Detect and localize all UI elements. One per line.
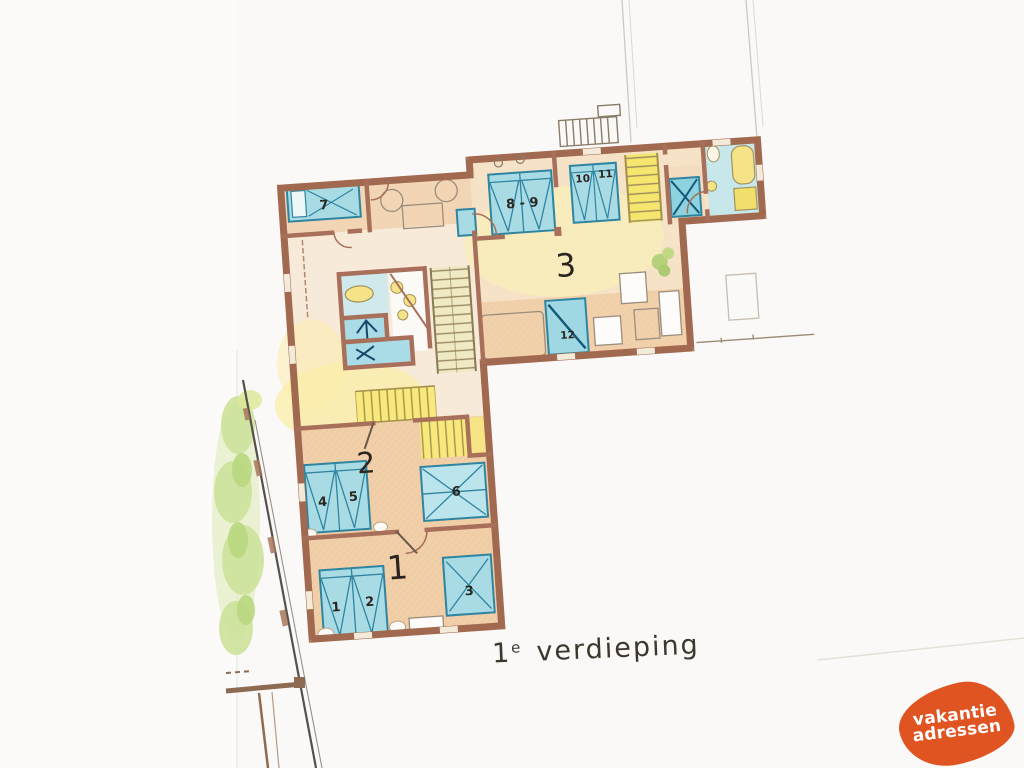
- floor-title-sup: e: [511, 638, 523, 656]
- bed-label-8-9: 8 - 9: [506, 195, 540, 212]
- bed-label-12: 12: [560, 329, 575, 342]
- staircase-center: [431, 265, 476, 373]
- bed-label-2: 2: [365, 595, 375, 611]
- room-label-2: 2: [356, 445, 377, 480]
- bed-label-3: 3: [464, 584, 474, 600]
- floor-title-number: 1: [491, 638, 512, 670]
- bed-label-1: 1: [331, 600, 341, 616]
- brand-watermark: vakantie adressen: [899, 684, 1013, 764]
- bed-label-4: 4: [318, 495, 328, 511]
- bed-label-5: 5: [348, 490, 358, 506]
- staircase-east: [625, 153, 662, 223]
- scanned-floorplan-page: 7 8 - 9 10 11 3 12 2 4 5 6 1 1 2 3 1ever…: [0, 0, 1024, 768]
- bed-label-6: 6: [451, 484, 461, 500]
- bed-label-11: 11: [598, 168, 613, 181]
- room-label-3: 3: [554, 246, 577, 285]
- room-label-1: 1: [386, 547, 410, 587]
- bed-1-2: [319, 566, 388, 638]
- bathtub: [731, 145, 756, 184]
- bed-label-7: 7: [319, 198, 329, 214]
- shower: [734, 187, 757, 210]
- staircase-hall-lower: [419, 416, 489, 459]
- bed-label-10: 10: [575, 173, 590, 186]
- paper-left-margin: [0, 0, 237, 768]
- bed-11-nook: [669, 177, 702, 217]
- bed-12: [545, 298, 589, 355]
